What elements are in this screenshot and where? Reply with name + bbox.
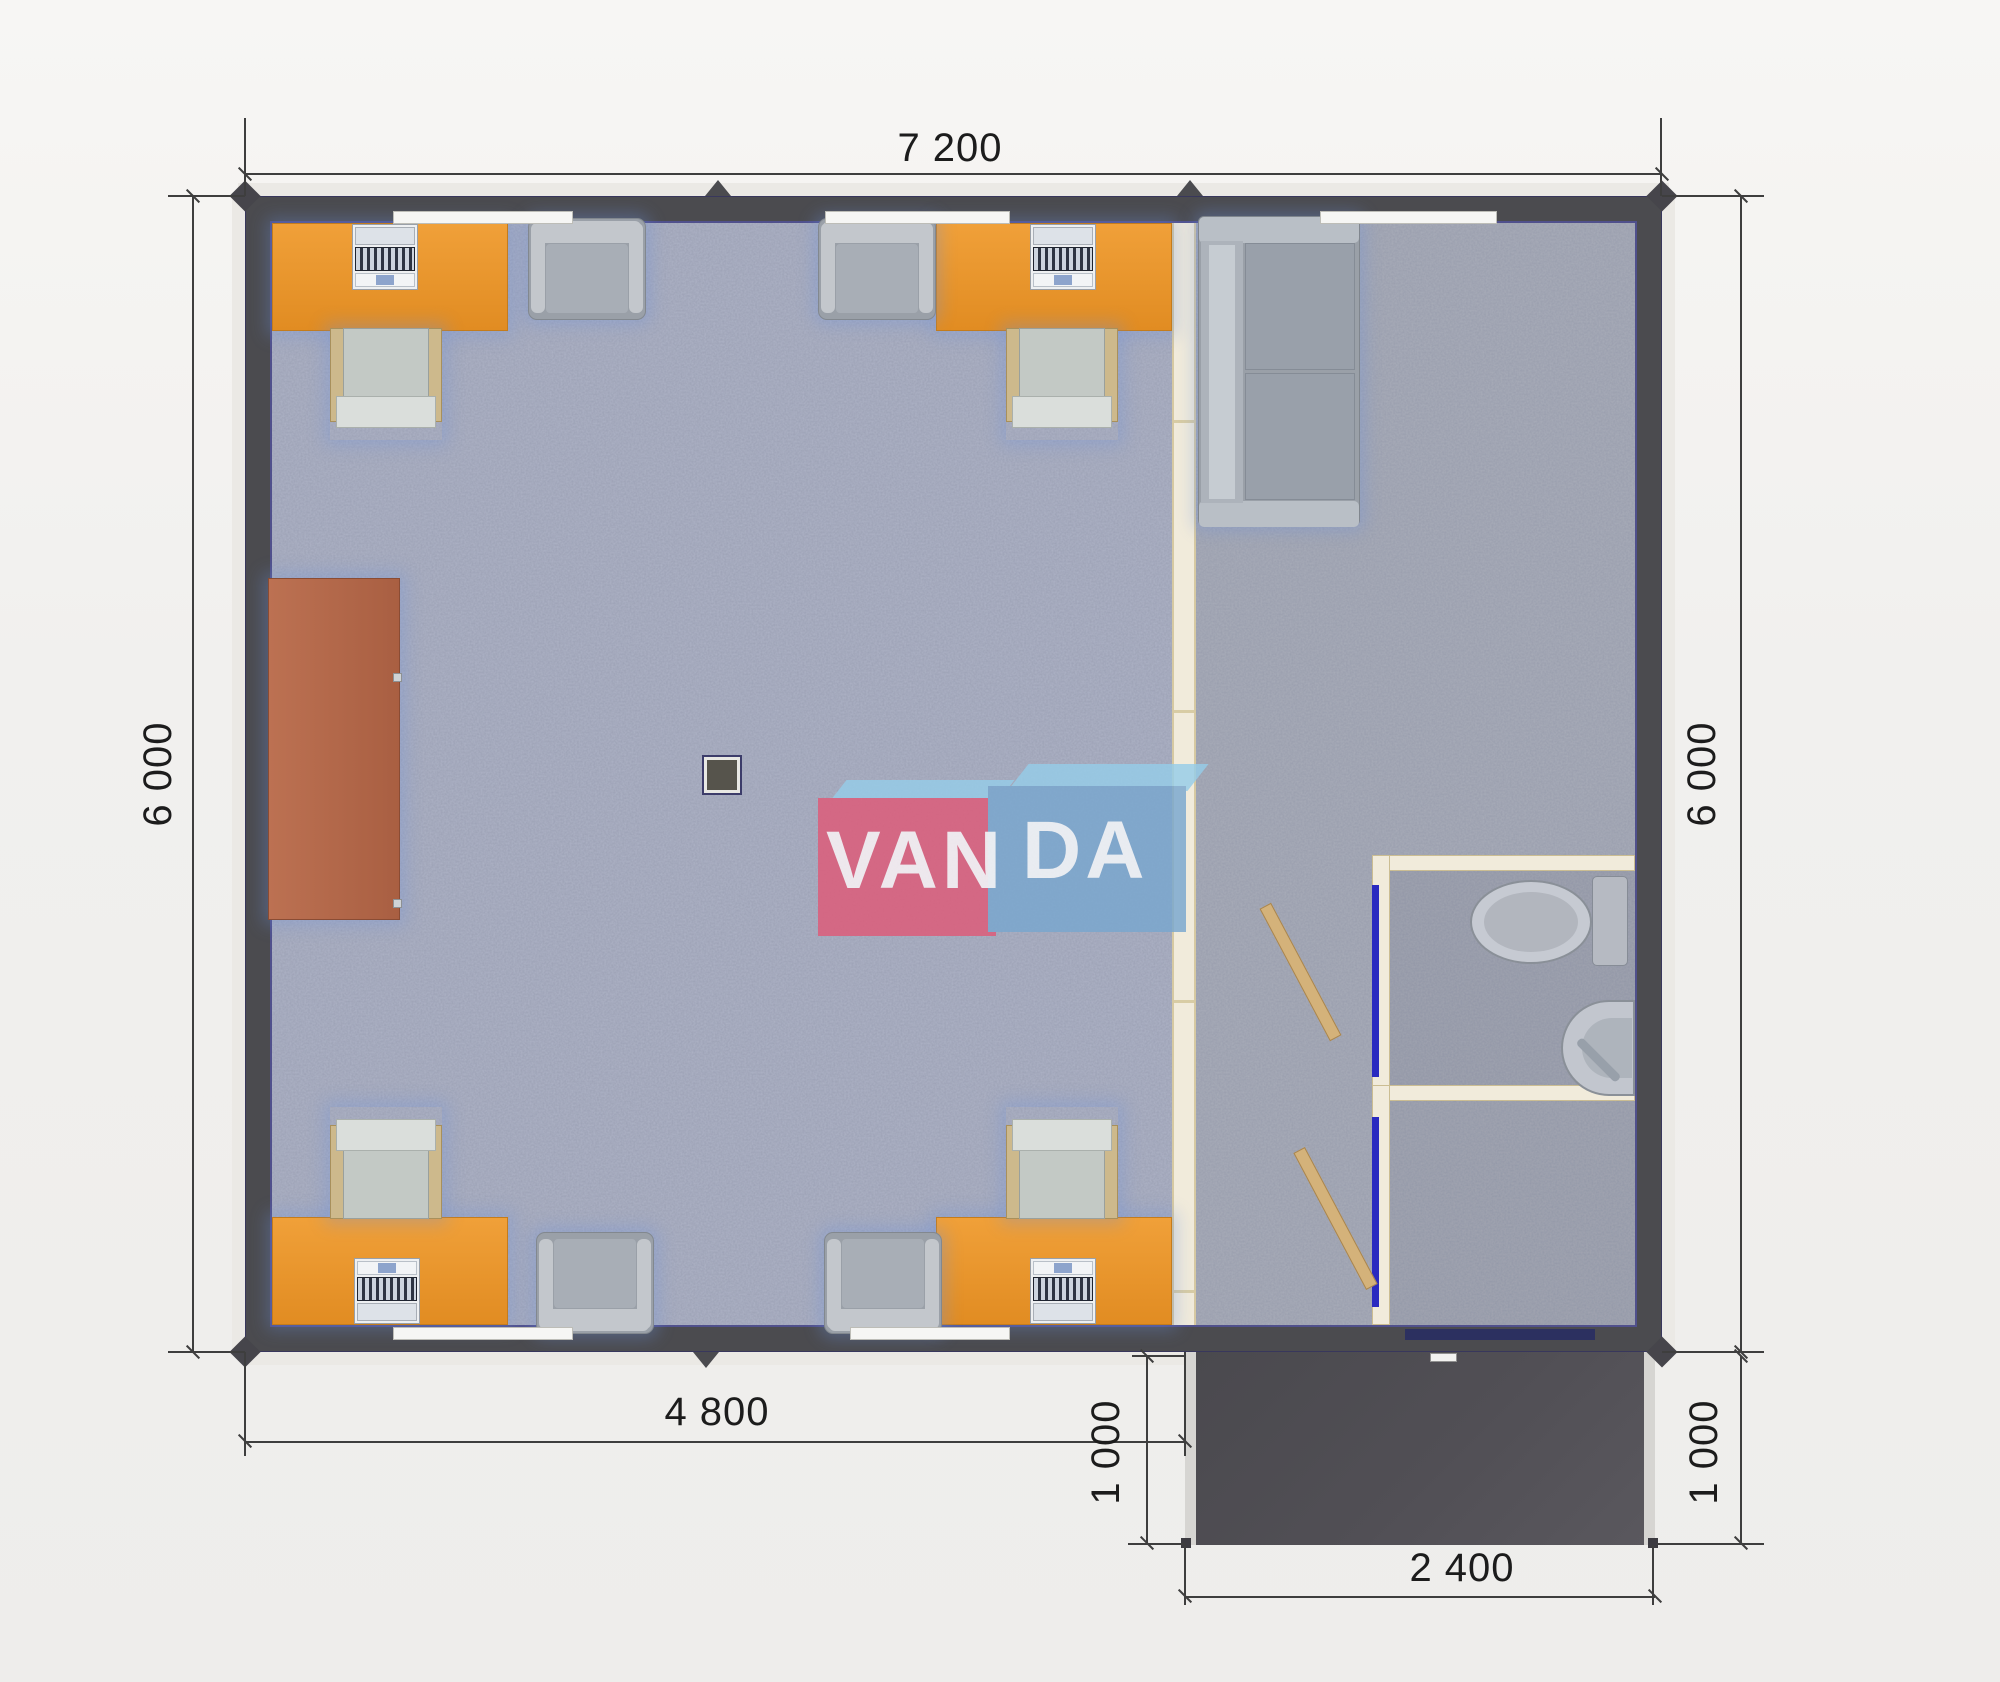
armchair-seat <box>546 244 628 313</box>
armchair-seat <box>842 1239 924 1308</box>
armchair-armrest <box>925 1239 939 1329</box>
office-chair-top-left <box>330 328 442 440</box>
chair-back <box>1019 1147 1105 1219</box>
sofa-seat-cushion <box>1245 373 1355 500</box>
desk-tray <box>355 273 415 287</box>
armchair-armrest <box>827 1239 841 1329</box>
extension-line <box>168 195 245 197</box>
armchair-armrest <box>629 223 643 313</box>
bathroom-wall-top <box>1372 855 1635 871</box>
extension-line <box>1660 118 1662 196</box>
armchair-armrest <box>919 223 933 313</box>
cabinet-handle <box>393 673 402 682</box>
armchair-seat <box>554 1239 636 1308</box>
entry-door <box>1405 1329 1595 1340</box>
module-joint-mark <box>1177 180 1203 196</box>
module-joint-mark <box>693 1352 719 1368</box>
partition-joint <box>1174 1290 1194 1293</box>
computer-top-left <box>352 224 418 290</box>
monitor <box>1033 1303 1093 1321</box>
extension-line <box>168 1351 245 1353</box>
dimension-line-porch-bottom <box>1185 1596 1655 1598</box>
monitor <box>1033 227 1093 245</box>
chair-seat <box>1012 1119 1112 1151</box>
armchair-armrest <box>637 1239 651 1329</box>
porch-edge-left <box>1185 1352 1196 1545</box>
mouse <box>1054 1263 1072 1273</box>
roof-edge-left <box>232 196 245 1352</box>
chair-seat <box>336 396 436 428</box>
desk-tray <box>1033 273 1093 287</box>
monitor <box>357 1303 417 1321</box>
partition-joint <box>1174 710 1194 713</box>
chair-back <box>1019 328 1105 400</box>
chair-seat <box>1012 396 1112 428</box>
sofa-back-cushion <box>1209 245 1235 499</box>
window-top-2 <box>825 211 1010 224</box>
dim-porch-right-label: 1 000 <box>1682 1352 1726 1552</box>
keyboard <box>1033 1277 1093 1301</box>
toilet-seat <box>1484 892 1578 952</box>
window-top-1 <box>393 211 573 224</box>
office-chair-bottom-left <box>330 1107 442 1219</box>
sofa <box>1198 216 1360 526</box>
desk-tray <box>1033 1261 1093 1275</box>
entry-door-handle <box>1430 1353 1457 1362</box>
extension-line <box>1132 1355 1185 1357</box>
computer-top-right <box>1030 224 1096 290</box>
armchair-top-2 <box>818 218 936 320</box>
keyboard <box>357 1277 417 1301</box>
armchair-armrest <box>531 223 545 313</box>
dim-top-label: 7 200 <box>850 126 1050 170</box>
bathroom-door-frame <box>1372 885 1379 1077</box>
computer-bottom-right <box>1030 1258 1096 1324</box>
dimension-line-bottom-left <box>245 1441 1186 1443</box>
armchair-back <box>823 221 931 243</box>
armchair-top-1 <box>528 218 646 320</box>
vestibule-floor-tint <box>1390 1101 1635 1325</box>
sofa-seat-cushion <box>1245 243 1355 370</box>
dim-porch-left-label: 1 000 <box>1084 1352 1128 1552</box>
armchair-armrest <box>539 1239 553 1329</box>
keyboard <box>1033 247 1093 271</box>
module-joint-mark <box>705 180 731 196</box>
toilet-tank <box>1592 876 1628 966</box>
logo-text-da: DA <box>1022 810 1148 892</box>
office-chair-bottom-right <box>1006 1107 1118 1219</box>
floor-plan-canvas: VAN DA 7 200 6 000 6 000 4 800 1 000 1 0… <box>0 0 2000 1682</box>
dimension-line-top <box>245 173 1662 175</box>
armchair-back <box>533 221 641 243</box>
window-top-3 <box>1320 211 1497 224</box>
chair-seat <box>336 1119 436 1151</box>
entrance-porch <box>1185 1352 1655 1545</box>
floor-service-box <box>704 757 740 793</box>
logo-text-van: VAN <box>826 820 1005 902</box>
mouse <box>1054 275 1072 285</box>
window-bottom-1 <box>393 1327 573 1340</box>
computer-bottom-left <box>354 1258 420 1324</box>
mouse <box>376 275 394 285</box>
dim-porch-bottom-label: 2 400 <box>1362 1546 1562 1590</box>
roof-edge-top <box>238 183 1669 196</box>
cabinet <box>268 578 400 920</box>
partition-joint <box>1174 420 1194 423</box>
roof-edge-right <box>1662 196 1675 1352</box>
dimension-line-porch-left <box>1146 1356 1148 1544</box>
porch-edge-right <box>1644 1352 1655 1545</box>
armchair-bottom-1 <box>536 1232 654 1334</box>
chair-back <box>343 328 429 400</box>
armchair-bottom-2 <box>824 1232 942 1334</box>
extension-line <box>1662 195 1764 197</box>
mouse <box>378 1263 396 1273</box>
cabinet-handle <box>393 899 402 908</box>
extension-line <box>1128 1543 1185 1545</box>
armchair-armrest <box>821 223 835 313</box>
monitor <box>355 227 415 245</box>
vanda-watermark: VAN DA <box>810 758 1190 943</box>
dim-left-label: 6 000 <box>136 674 180 874</box>
sofa-armrest-bottom <box>1199 501 1359 527</box>
dimension-line-porch-right <box>1740 1356 1742 1544</box>
chair-back <box>343 1147 429 1219</box>
keyboard <box>355 247 415 271</box>
extension-line <box>244 118 246 196</box>
dim-bottom-label: 4 800 <box>617 1390 817 1434</box>
partition-joint <box>1174 1000 1194 1003</box>
dimension-line-right <box>1740 196 1742 1352</box>
dimension-line-left <box>192 196 194 1352</box>
desk-tray <box>357 1261 417 1275</box>
dim-right-label: 6 000 <box>1680 674 1724 874</box>
armchair-seat <box>836 244 918 313</box>
office-chair-top-right <box>1006 328 1118 440</box>
window-bottom-2 <box>850 1327 1010 1340</box>
